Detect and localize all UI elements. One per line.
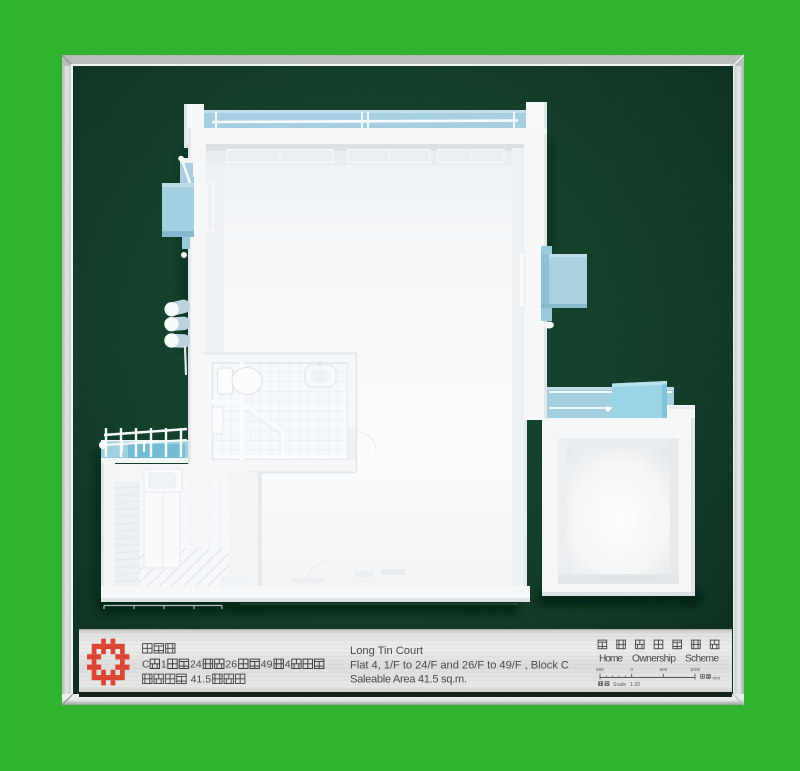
- svg-text:1: 1: [161, 658, 167, 670]
- svg-text:Flat 4, 1/F to 24/F and 26/F t: Flat 4, 1/F to 24/F and 26/F to 49/F , B…: [350, 660, 569, 672]
- svg-text:24: 24: [190, 658, 202, 670]
- svg-text:Saleable Area 41.5 sq.m.: Saleable Area 41.5 sq.m.: [350, 674, 467, 686]
- svg-text:49: 49: [261, 658, 273, 670]
- svg-text:C: C: [142, 658, 150, 670]
- svg-text:Long Tin Court: Long Tin Court: [350, 645, 424, 657]
- svg-text:4: 4: [285, 658, 291, 670]
- svg-text:500: 500: [659, 667, 667, 672]
- svg-text:Scheme: Scheme: [685, 654, 719, 665]
- svg-text:0: 0: [630, 667, 633, 672]
- svg-text:mm: mm: [713, 676, 721, 681]
- svg-text:Scale: Scale: [613, 682, 626, 688]
- svg-text:Home: Home: [599, 654, 623, 665]
- svg-text:Ownership: Ownership: [632, 654, 676, 665]
- svg-text:1000: 1000: [690, 667, 701, 672]
- svg-text:1:20: 1:20: [630, 682, 640, 688]
- svg-text:26: 26: [225, 658, 237, 670]
- svg-text:41.5: 41.5: [191, 673, 212, 685]
- svg-text:500: 500: [596, 667, 604, 672]
